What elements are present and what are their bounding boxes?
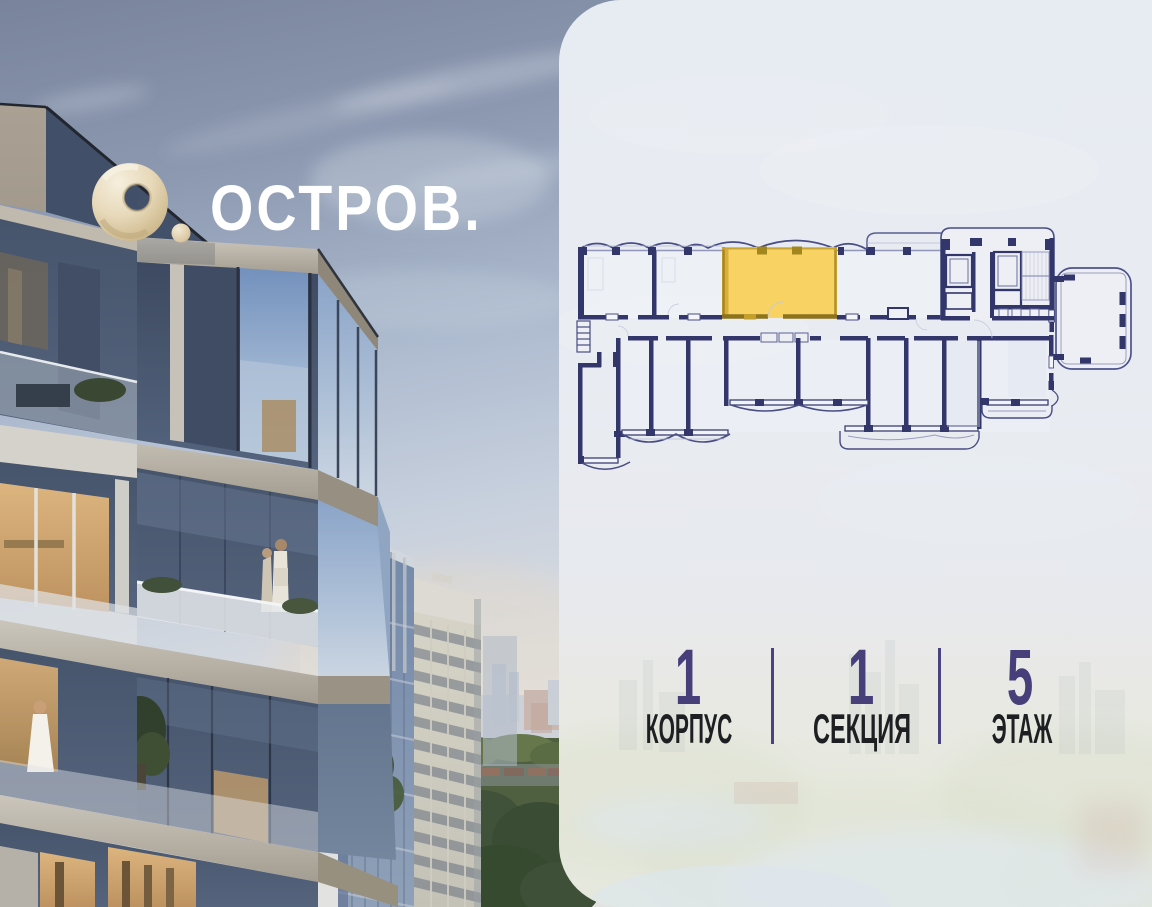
svg-text:ОСТРОВ.: ОСТРОВ. <box>210 172 483 243</box>
